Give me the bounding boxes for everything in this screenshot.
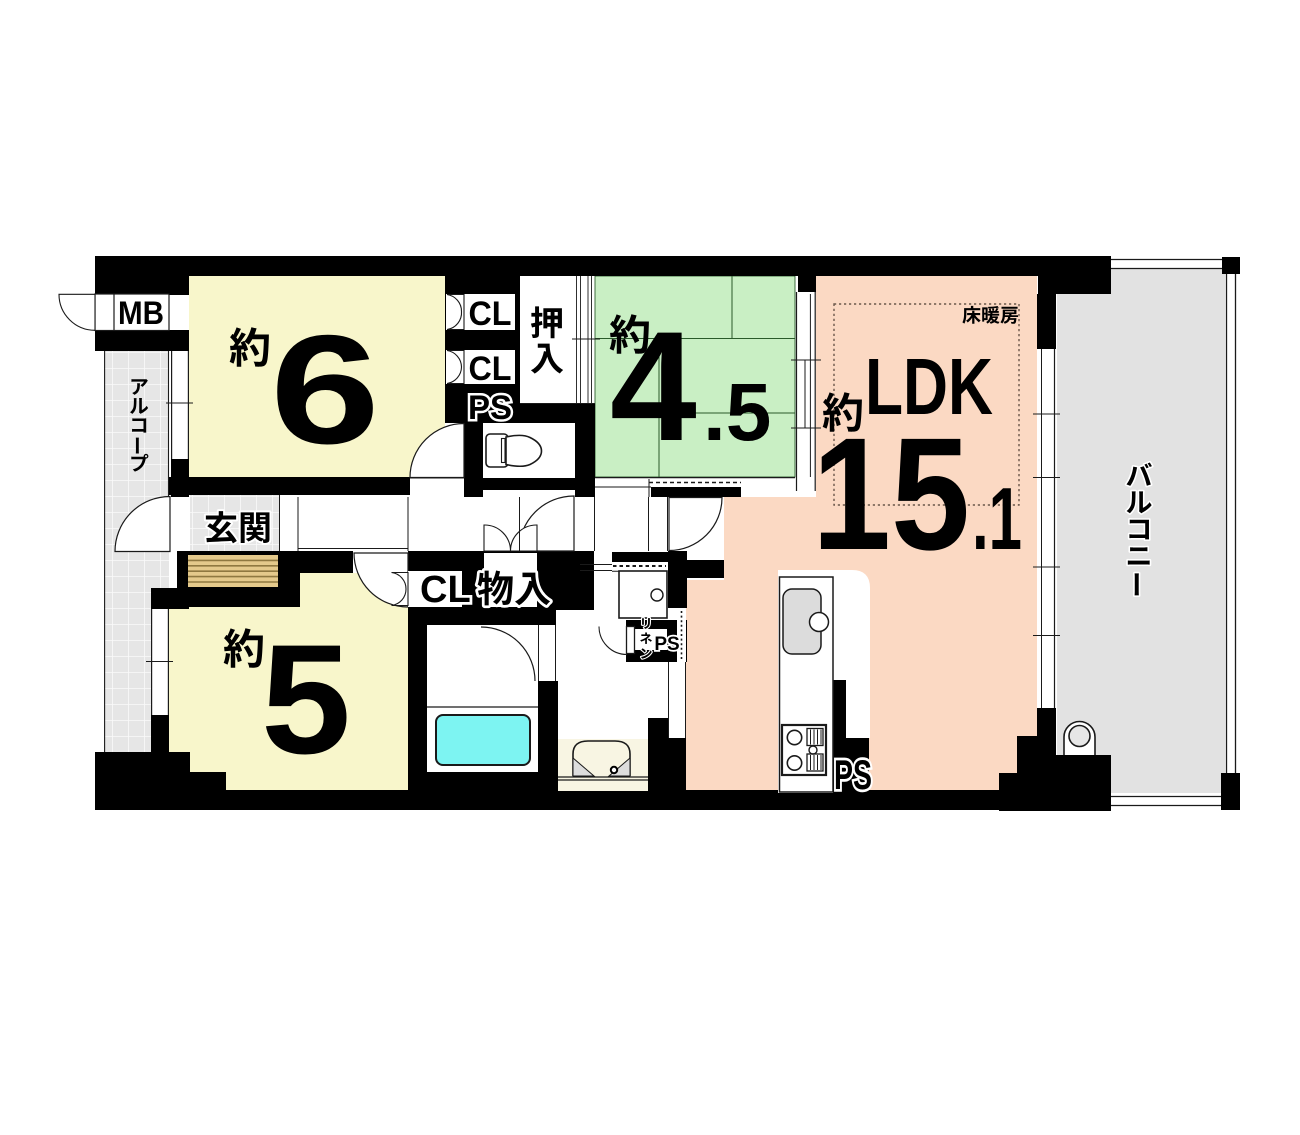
svg-text:CL: CL <box>469 295 512 333</box>
svg-text:.5: .5 <box>703 367 771 458</box>
svg-text:4: 4 <box>610 300 697 474</box>
svg-text:15: 15 <box>812 404 970 583</box>
svg-text:CL: CL <box>420 569 471 611</box>
svg-text:6: 6 <box>270 303 380 476</box>
svg-text:.1: .1 <box>972 469 1022 568</box>
svg-text:MB: MB <box>118 295 164 331</box>
svg-text:PS: PS <box>468 389 512 427</box>
svg-text:PS: PS <box>654 634 679 655</box>
svg-text:PS: PS <box>834 751 872 798</box>
svg-text:5: 5 <box>261 613 351 787</box>
svg-text:CL: CL <box>469 350 512 388</box>
